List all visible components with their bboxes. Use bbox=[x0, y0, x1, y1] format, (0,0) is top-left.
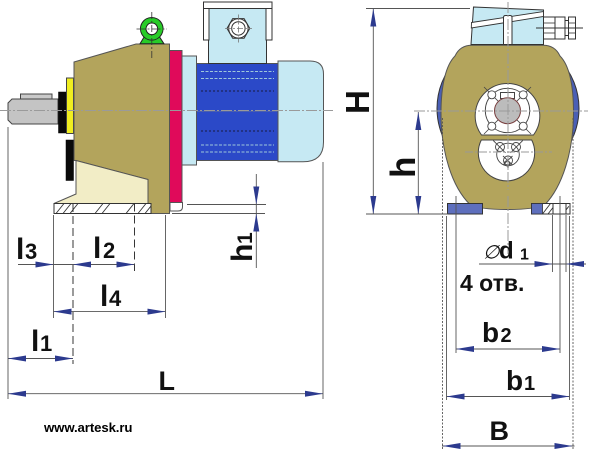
svg-text:1: 1 bbox=[524, 373, 535, 395]
svg-text:B: B bbox=[490, 416, 510, 446]
svg-text:l: l bbox=[16, 233, 24, 266]
svg-text:b: b bbox=[482, 317, 499, 348]
svg-text:2: 2 bbox=[501, 325, 512, 347]
svg-text:h: h bbox=[384, 157, 423, 178]
svg-text:1: 1 bbox=[520, 247, 529, 264]
svg-text:l: l bbox=[100, 280, 108, 313]
svg-text:d: d bbox=[499, 238, 514, 265]
svg-text:1: 1 bbox=[234, 232, 257, 244]
svg-text:2: 2 bbox=[103, 238, 115, 263]
svg-text:l: l bbox=[31, 325, 39, 358]
svg-text:h: h bbox=[226, 244, 259, 262]
svg-text:L: L bbox=[159, 366, 176, 396]
svg-text:b: b bbox=[506, 365, 523, 396]
svg-text:l: l bbox=[93, 232, 101, 265]
svg-text:1: 1 bbox=[40, 331, 52, 356]
svg-text:3: 3 bbox=[25, 239, 37, 264]
svg-text:4 отв.: 4 отв. bbox=[460, 270, 524, 296]
svg-text:www.artesk.ru: www.artesk.ru bbox=[43, 420, 132, 435]
svg-text:4: 4 bbox=[109, 286, 122, 311]
svg-text:H: H bbox=[339, 90, 376, 114]
